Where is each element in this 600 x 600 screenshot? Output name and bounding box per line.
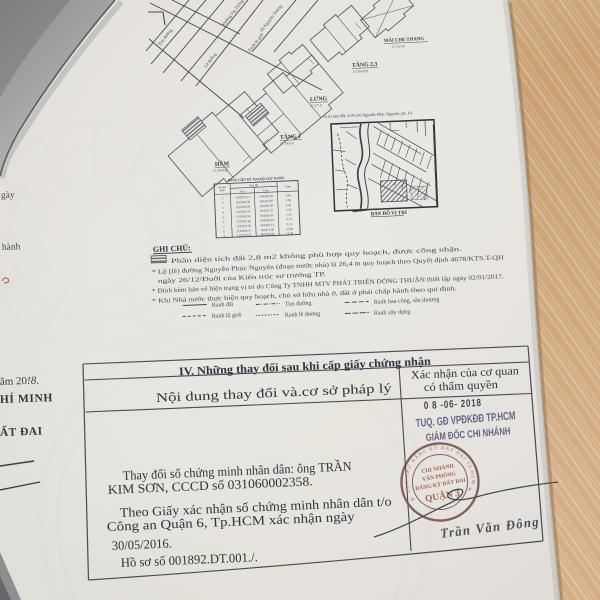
svg-text:30/05/2016.: 30/05/2016. <box>111 535 172 552</box>
svg-text:3.46: 3.46 <box>286 203 292 207</box>
svg-text:57.38/4.07: 57.38/4.07 <box>353 69 369 74</box>
svg-text:604399.48: 604399.48 <box>260 218 274 223</box>
svg-text:37.2/7.9: 37.2/7.9 <box>310 103 322 108</box>
svg-text:điểm: điểm <box>220 189 225 192</box>
svg-text:1.39: 1.39 <box>286 212 292 216</box>
svg-text:hành: hành <box>2 242 21 253</box>
svg-text:17.31/18: 17.31/18 <box>392 44 405 49</box>
svg-text:Ranh lộ giới: Ranh lộ giới <box>212 313 242 320</box>
svg-text:604395.09: 604395.09 <box>260 204 274 209</box>
svg-text:3.45: 3.45 <box>286 208 292 212</box>
svg-text:57.78/9.4: 57.78/9.4 <box>280 141 294 146</box>
svg-text:604390.08: 604390.08 <box>261 232 275 237</box>
svg-text:57.38/9.82: 57.38/9.82 <box>213 168 229 173</box>
svg-text:604391.98: 604391.98 <box>260 199 274 204</box>
svg-text:604398.49: 604398.49 <box>260 213 274 218</box>
svg-text:ăm 20!8.: ăm 20!8. <box>0 375 39 388</box>
svg-text:Y(m): Y(m) <box>263 189 269 192</box>
svg-text:Tọa độ: Tọa độ <box>249 183 259 187</box>
svg-text:3.99: 3.99 <box>285 198 291 202</box>
svg-text:9.14: 9.14 <box>286 222 292 226</box>
svg-text:604397.97: 604397.97 <box>260 208 274 213</box>
svg-text:X(m): X(m) <box>239 190 245 193</box>
svg-text:gày: gày <box>1 191 15 201</box>
svg-text:Tim đường: Tim đường <box>285 301 312 308</box>
svg-text:5.74: 5.74 <box>286 217 292 221</box>
svg-text:604392.71: 604392.71 <box>261 223 275 228</box>
svg-text:Ranh đất: Ranh đất <box>212 301 234 309</box>
svg-text:604390.08: 604390.08 <box>259 194 273 199</box>
svg-text:3.98: 3.98 <box>285 193 291 197</box>
svg-text:Cạnh: Cạnh <box>285 185 292 188</box>
svg-text:1192974.37: 1192974.37 <box>237 233 252 238</box>
svg-text:13.38: 13.38 <box>286 231 294 235</box>
